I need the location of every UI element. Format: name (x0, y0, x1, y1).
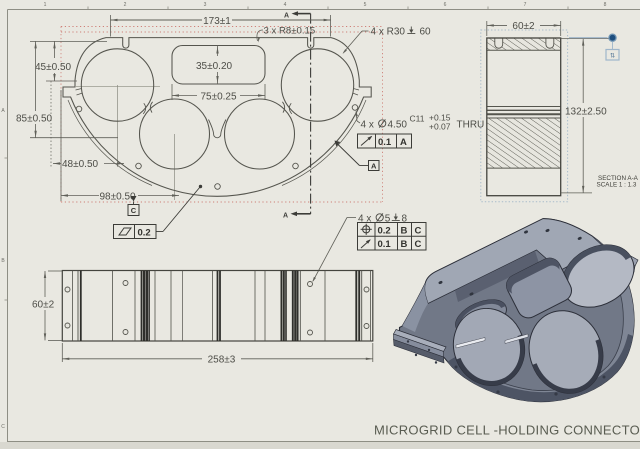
svg-text:258±3: 258±3 (208, 355, 236, 366)
svg-text:4: 4 (284, 2, 287, 8)
svg-text:2: 2 (124, 2, 127, 8)
svg-text:48±0.50: 48±0.50 (62, 159, 99, 170)
svg-text:45±0.50: 45±0.50 (35, 62, 72, 73)
svg-text:35±0.20: 35±0.20 (196, 61, 233, 72)
svg-text:3 x R8±0.15: 3 x R8±0.15 (264, 26, 316, 37)
svg-text:0.2: 0.2 (138, 228, 151, 239)
svg-text:C11: C11 (410, 114, 425, 124)
svg-text:A: A (371, 162, 377, 171)
svg-text:0.1: 0.1 (378, 239, 392, 250)
svg-text:B: B (401, 225, 408, 236)
svg-text:85±0.50: 85±0.50 (16, 114, 53, 125)
svg-text:4 x: 4 x (361, 120, 374, 131)
svg-text:A: A (284, 13, 289, 20)
svg-text:60±2: 60±2 (512, 21, 535, 32)
svg-text:60: 60 (420, 27, 432, 38)
svg-text:⇅: ⇅ (610, 54, 615, 60)
svg-text:B: B (401, 239, 408, 250)
svg-text:6: 6 (444, 2, 447, 8)
svg-text:A: A (400, 137, 407, 148)
svg-text:C: C (1, 424, 5, 430)
svg-text:60±2: 60±2 (32, 300, 55, 311)
svg-text:132±2.50: 132±2.50 (565, 107, 607, 118)
svg-text:1: 1 (44, 2, 47, 8)
svg-text:A: A (283, 213, 288, 220)
svg-text:8: 8 (604, 2, 607, 8)
svg-text:0.2: 0.2 (378, 225, 391, 236)
svg-text:SCALE 1 : 1.3: SCALE 1 : 1.3 (597, 182, 637, 189)
svg-text:C: C (415, 225, 422, 236)
svg-text:MICROGRID CELL -HOLDING CONNEC: MICROGRID CELL -HOLDING CONNECTOR (374, 423, 640, 438)
svg-text:+0.07: +0.07 (429, 122, 451, 132)
svg-text:C: C (415, 239, 422, 250)
svg-text:5: 5 (364, 2, 367, 8)
svg-text:173±1: 173±1 (203, 16, 231, 27)
svg-text:4.50: 4.50 (388, 120, 408, 131)
svg-text:75±0.25: 75±0.25 (200, 91, 237, 102)
svg-text:C: C (131, 206, 137, 215)
svg-text:0.1: 0.1 (378, 137, 392, 148)
svg-text:3: 3 (204, 2, 207, 8)
svg-text:THRU: THRU (457, 120, 485, 131)
svg-text:98±0.50: 98±0.50 (100, 192, 137, 203)
svg-text:4 x R30: 4 x R30 (371, 27, 406, 38)
svg-text:7: 7 (524, 2, 527, 8)
